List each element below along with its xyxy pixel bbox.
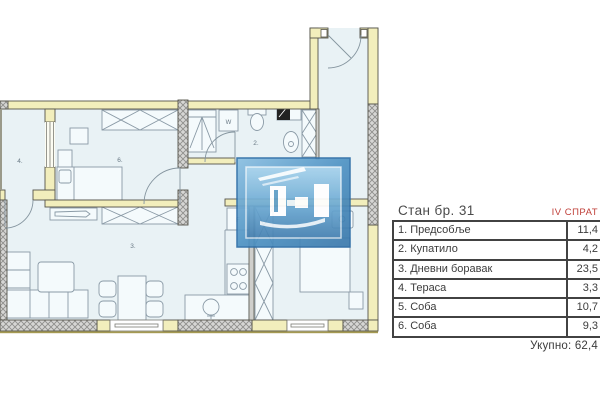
total-line: Укупно: 62,4 — [392, 340, 600, 352]
table-row: 3. Дневни боравак 23,5 — [393, 260, 600, 279]
floor-badge: IV СПРАТ — [552, 207, 598, 218]
area-table: 1. Предсобље 11,4 2. Купатило 4,2 3. Дне… — [392, 220, 600, 338]
row-label: 4. Тераса — [393, 279, 567, 298]
plinth-line — [0, 331, 378, 333]
panel-header: Стан бр. 31 IV СПРАТ — [392, 199, 600, 220]
room4-label: 4. — [17, 158, 23, 165]
row-label: 6. Соба — [393, 317, 567, 336]
room3-label: 3. — [130, 243, 136, 250]
row-value: 10,7 — [567, 298, 600, 317]
total-value: 62,4 — [575, 340, 598, 352]
row-label: 5. Соба — [393, 298, 567, 317]
room2-label: 2. — [253, 140, 259, 147]
room6-label: 6. — [117, 157, 123, 164]
watermark-logo — [237, 158, 350, 247]
row-label: 3. Дневни боравак — [393, 260, 567, 279]
row-value: 9,3 — [567, 317, 600, 336]
total-label: Укупно: — [530, 340, 571, 352]
table-row: 1. Предсобље 11,4 — [393, 221, 600, 240]
table-row: 4. Тераса 3,3 — [393, 279, 600, 298]
apartment-title: Стан бр. 31 — [398, 203, 475, 218]
row-value: 4,2 — [567, 240, 600, 259]
table-row: 5. Соба 10,7 — [393, 298, 600, 317]
apartment-info-panel: Стан бр. 31 IV СПРАТ 1. Предсобље 11,4 2… — [392, 199, 600, 352]
washer-label: W — [226, 120, 232, 126]
row-value: 3,3 — [567, 279, 600, 298]
table-row: 6. Соба 9,3 — [393, 317, 600, 336]
row-value: 23,5 — [567, 260, 600, 279]
floor-plan-page: { "floor_plan": { "room_labels": { "room… — [0, 0, 600, 400]
row-value: 11,4 — [567, 221, 600, 240]
table-row: 2. Купатило 4,2 — [393, 240, 600, 259]
row-label: 1. Предсобље — [393, 221, 567, 240]
row-label: 2. Купатило — [393, 240, 567, 259]
